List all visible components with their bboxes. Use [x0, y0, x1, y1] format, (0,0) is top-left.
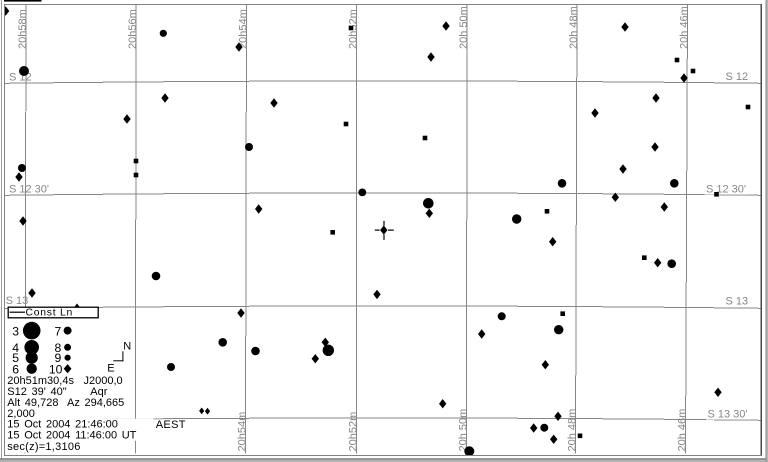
svg-text:20h54m: 20h54m [237, 412, 249, 452]
svg-text:S 13: S 13 [6, 295, 29, 307]
svg-text:7: 7 [55, 325, 62, 339]
svg-text:20h52m: 20h52m [348, 412, 360, 452]
svg-text:E: E [107, 362, 114, 374]
svg-text:15 Oct 2004 11:46:00 UT: 15 Oct 2004 11:46:00 UT [7, 430, 136, 442]
svg-text:Az 294,665: Az 294,665 [67, 397, 124, 409]
svg-text:20h 48m: 20h 48m [568, 6, 580, 49]
svg-text:S 13: S 13 [726, 295, 749, 307]
svg-text:20h 50m: 20h 50m [458, 409, 470, 452]
svg-text:15 Oct 2004 21:46:00: 15 Oct 2004 21:46:00 [7, 418, 118, 430]
svg-text:20h 46m: 20h 46m [677, 409, 689, 452]
svg-text:20h 46m: 20h 46m [679, 6, 691, 49]
svg-text:S 12 30': S 12 30' [9, 184, 49, 196]
svg-text:20h 48m: 20h 48m [567, 409, 579, 452]
svg-text:N: N [123, 341, 131, 353]
svg-text:3: 3 [12, 325, 19, 339]
svg-text:20h58m: 20h58m [17, 9, 29, 49]
svg-text:S 13 30': S 13 30' [708, 409, 748, 421]
svg-text:20h 50m: 20h 50m [458, 6, 470, 49]
svg-text:S 12: S 12 [726, 71, 749, 83]
svg-text:AEST: AEST [156, 419, 186, 431]
svg-text:20h56m: 20h56m [127, 9, 139, 49]
svg-text:S 12 30': S 12 30' [706, 184, 746, 196]
svg-text:Const Ln: Const Ln [26, 308, 74, 319]
svg-text:sec(z)=1,3106: sec(z)=1,3106 [7, 441, 80, 453]
